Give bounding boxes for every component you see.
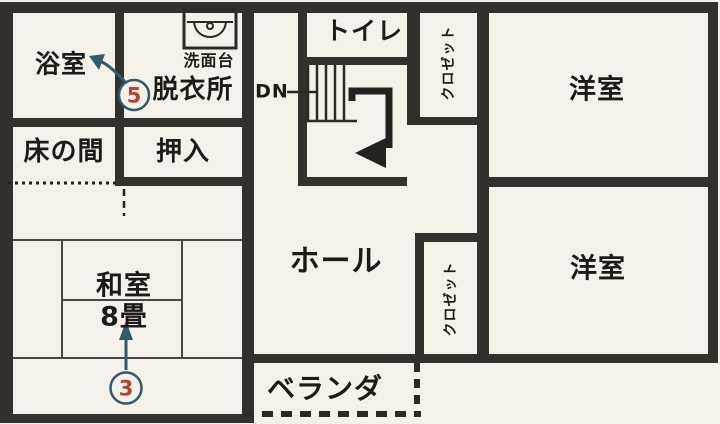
wall-toilet-bottom (307, 57, 407, 65)
room-label-tokonoma: 床の間 (23, 139, 104, 165)
wall-stairwell-right (407, 10, 420, 125)
wall-bottom-right (477, 354, 718, 363)
room-label-western-room-lower: 洋室 (570, 256, 626, 283)
room-label-closet-upper: クロゼット (442, 26, 456, 101)
stair-direction-arrow (352, 91, 389, 168)
wall-bottom-left (0, 414, 254, 423)
room-label-veranda: ベランダ (267, 375, 383, 403)
wall-closet-lower-top (415, 233, 477, 242)
wall-hall-bottom (254, 354, 477, 363)
wall-top (0, 2, 718, 13)
marker-5-number: 5 (127, 86, 142, 107)
stairs-icon (287, 65, 357, 121)
wall-left (0, 2, 13, 423)
room-label-hall: ホール (290, 247, 383, 277)
wall-oshiire-bottom (115, 177, 242, 186)
room-label-closet-lower: クロゼット (444, 262, 458, 337)
wall-right (708, 2, 718, 363)
wall-closet-lower-left (415, 235, 424, 354)
stairs-down-label: DN (255, 83, 289, 102)
wall-center-vertical (242, 8, 254, 414)
washbasin-icon (184, 10, 236, 48)
room-label-japanese-room-size: 8畳 (100, 304, 148, 331)
room-label-oshiire: 押入 (156, 139, 210, 165)
room-label-dressing-room: 脱衣所 (152, 77, 233, 103)
floor-plan-page: 浴室 洗面台 脱衣所 床の間 押入 トイレ クロゼット クロゼット 洋室 洋室 … (0, 0, 720, 424)
room-label-japanese-room: 和室 (96, 273, 152, 300)
wall-stairwell-left (298, 10, 307, 186)
room-label-toilet: トイレ (325, 19, 403, 44)
wall-stairwell-bottom (298, 177, 407, 186)
wall-bathroom-bottom (13, 118, 242, 127)
wall-closet-upper-bottom (420, 117, 477, 125)
marker-3-number: 3 (119, 379, 134, 400)
floor-plan-drawing (0, 0, 720, 424)
room-label-western-room-upper: 洋室 (569, 77, 625, 104)
room-label-bathroom: 浴室 (35, 52, 87, 77)
wall-tokonoma-right (115, 127, 124, 179)
wall-western-divider (489, 177, 708, 187)
wall-western-rooms-left (477, 10, 489, 363)
room-label-washstand: 洗面台 (183, 53, 234, 69)
